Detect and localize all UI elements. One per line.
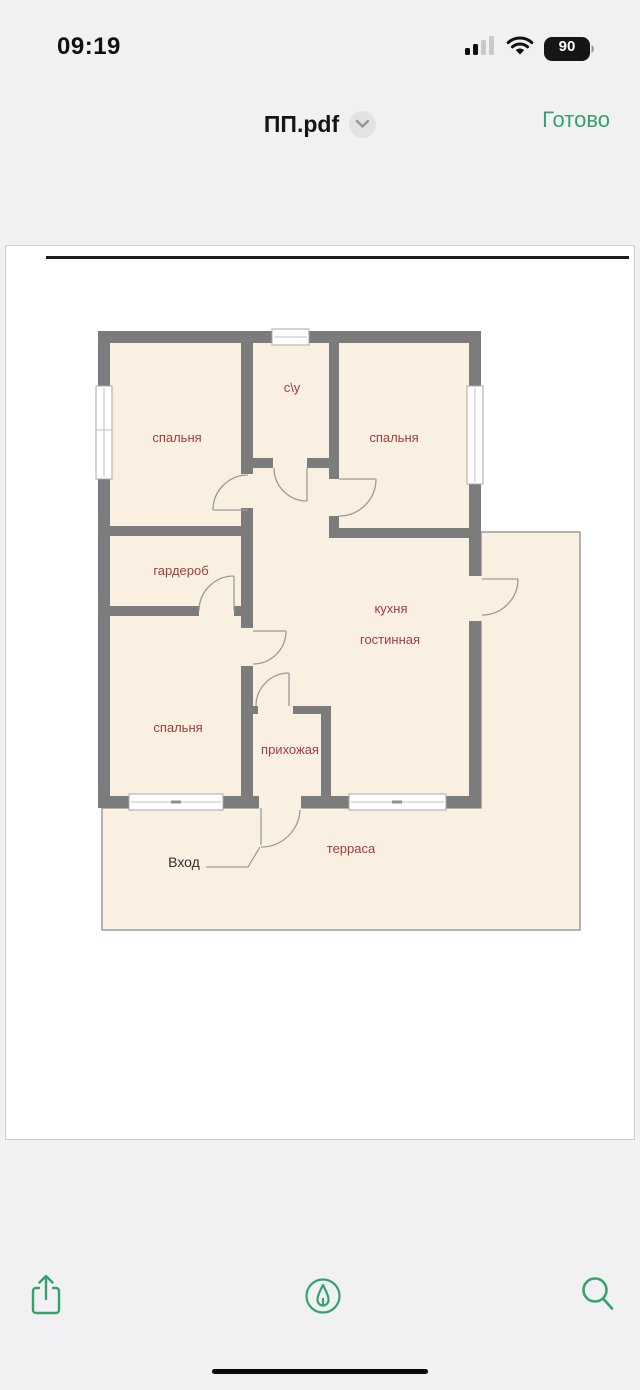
- entrance-label: Вход: [168, 854, 200, 870]
- page-rule-line: [46, 256, 629, 259]
- battery-icon: 90: [544, 36, 596, 62]
- markup-button[interactable]: [303, 1276, 343, 1321]
- room-label-bedroom-top-right: спальня: [369, 430, 418, 445]
- clock: 09:19: [57, 33, 121, 61]
- done-button[interactable]: Готово: [542, 107, 610, 133]
- document-title: ПП.pdf: [264, 111, 339, 138]
- room-label-living: гостинная: [360, 632, 420, 647]
- chevron-down-icon: [355, 119, 370, 129]
- search-button[interactable]: [578, 1274, 618, 1321]
- share-icon: [28, 1273, 64, 1317]
- cellular-signal-icon: [464, 34, 496, 63]
- room-label-bedroom-bottom-left: спальня: [153, 720, 202, 735]
- status-bar: 09:19 90: [0, 0, 640, 70]
- home-indicator[interactable]: [212, 1369, 428, 1374]
- pdf-page[interactable]: спальня с\у спальня гардероб кухня гости…: [5, 245, 635, 1140]
- floor-plan: спальня с\у спальня гардероб кухня гости…: [6, 246, 634, 1139]
- room-label-bathroom: с\у: [284, 380, 301, 395]
- room-label-bedroom-top-left: спальня: [152, 430, 201, 445]
- search-icon: [578, 1274, 618, 1316]
- bottom-toolbar: [0, 1245, 640, 1355]
- title-menu-button[interactable]: [349, 111, 376, 138]
- battery-percent: 90: [544, 38, 590, 55]
- room-label-wardrobe: гардероб: [153, 563, 208, 578]
- pdf-viewer-screen: { "status_bar": { "time": "09:19", "batt…: [0, 0, 640, 1390]
- wifi-icon: [505, 34, 535, 63]
- room-label-hallway: прихожая: [261, 742, 319, 757]
- nav-bar: ПП.pdf Готово: [0, 92, 640, 156]
- share-button[interactable]: [28, 1273, 64, 1322]
- room-label-terrace: терраса: [327, 841, 376, 856]
- room-label-kitchen: кухня: [374, 601, 407, 616]
- markup-icon: [303, 1276, 343, 1316]
